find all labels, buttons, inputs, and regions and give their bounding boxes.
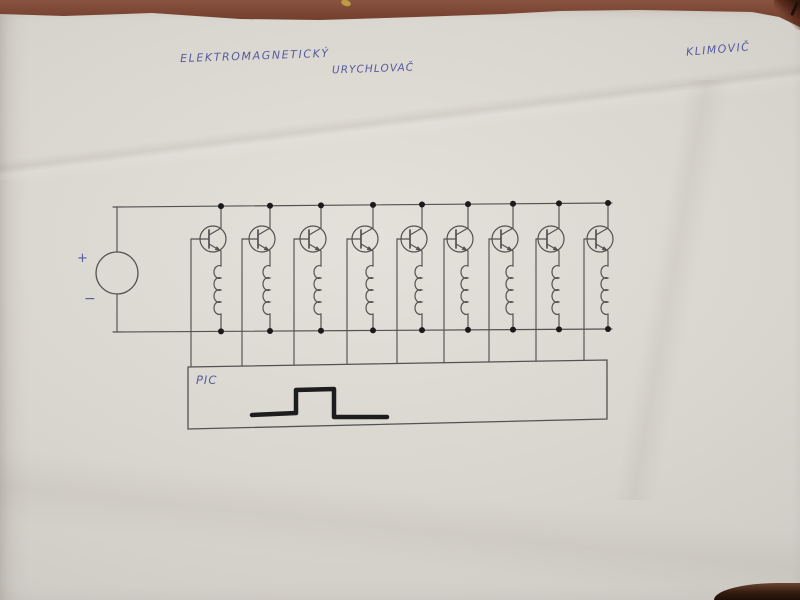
bottom-junction-dot-8: [556, 326, 562, 332]
pulse-waveform: [252, 389, 387, 417]
top-junction-dot-6: [465, 201, 471, 207]
bottom-junction-dot-7: [510, 327, 516, 333]
emitter-arrow-icon: [367, 246, 373, 251]
emitter-arrow-icon: [315, 246, 321, 251]
voltage-source: [96, 252, 138, 294]
coil-8: [552, 263, 559, 329]
coil-4: [366, 263, 373, 330]
bottom-junction-dot-5: [419, 327, 425, 333]
bottom-rail: [113, 329, 612, 332]
emitter-arrow-icon: [462, 246, 468, 251]
photo-of-circuit-sketch: ELEKTROMAGNETICKÝ URYCHLOVAČ KLIMOVIČ +−…: [0, 0, 800, 600]
coil-1: [214, 263, 221, 331]
coil-5: [415, 263, 422, 330]
emitter-arrow-icon: [553, 246, 559, 251]
top-junction-dot-4: [370, 202, 376, 208]
top-rail: [113, 203, 612, 207]
pic-box: [188, 360, 607, 429]
coil-3: [314, 263, 321, 331]
collector-diagonal: [410, 228, 422, 235]
bottom-junction-dot-1: [218, 328, 224, 334]
top-junction-dot-5: [419, 202, 425, 208]
bottom-junction-dot-2: [267, 328, 273, 334]
collector-diagonal: [258, 228, 270, 235]
top-junction-dot-7: [510, 201, 516, 207]
pic-label: PIC: [196, 373, 217, 387]
circuit-diagram: +−PIC: [0, 0, 800, 600]
emitter-arrow-icon: [507, 246, 513, 251]
collector-diagonal: [547, 228, 559, 235]
emitter-arrow-icon: [215, 246, 221, 251]
coil-7: [506, 263, 513, 330]
emitter-arrow-icon: [264, 246, 270, 251]
coil-9: [601, 263, 608, 329]
bottom-junction-dot-4: [370, 327, 376, 333]
collector-diagonal: [501, 228, 513, 235]
top-junction-dot-8: [556, 200, 562, 206]
top-junction-dot-3: [318, 202, 324, 208]
collector-diagonal: [361, 228, 373, 235]
coil-2: [263, 263, 270, 331]
collector-diagonal: [596, 228, 608, 235]
collector-diagonal: [456, 228, 468, 235]
source-minus-label: −: [84, 291, 97, 307]
collector-diagonal: [309, 228, 321, 235]
bottom-junction-dot-3: [318, 328, 324, 334]
coil-6: [461, 263, 468, 330]
top-junction-dot-9: [605, 200, 611, 206]
top-junction-dot-1: [218, 203, 224, 209]
bottom-junction-dot-6: [465, 327, 471, 333]
collector-diagonal: [209, 228, 221, 235]
emitter-arrow-icon: [602, 246, 608, 251]
source-plus-label: +: [77, 251, 89, 266]
bottom-junction-dot-9: [605, 326, 611, 332]
emitter-arrow-icon: [416, 246, 422, 251]
top-junction-dot-2: [267, 203, 273, 209]
